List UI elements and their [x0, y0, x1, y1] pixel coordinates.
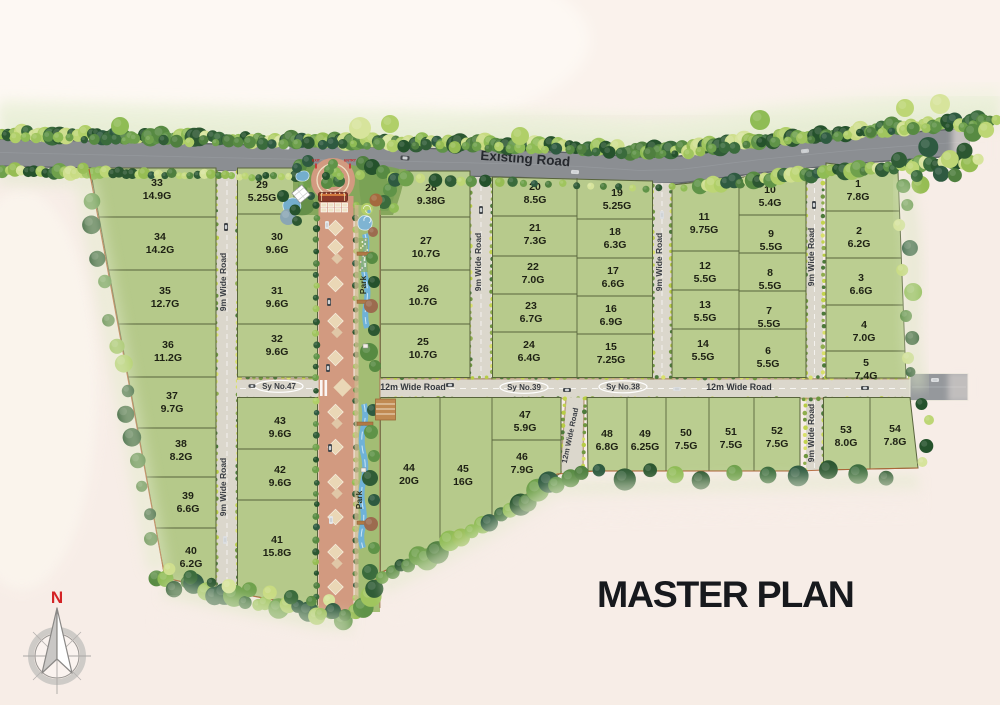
svg-text:12m Wide Road: 12m Wide Road [706, 382, 771, 392]
svg-text:9m Wide Road: 9m Wide Road [654, 233, 664, 292]
svg-text:9m Wide Road: 9m Wide Road [806, 228, 816, 287]
svg-text:MASTER PLAN: MASTER PLAN [597, 573, 854, 615]
svg-text:Park: Park [354, 491, 364, 510]
svg-text:9m Wide Road: 9m Wide Road [218, 458, 228, 517]
svg-text:Sy No.47: Sy No.47 [262, 382, 296, 391]
svg-text:ENTRY: ENTRY [344, 159, 357, 163]
svg-text:Park: Park [358, 276, 368, 295]
svg-text:12m Wide Road: 12m Wide Road [380, 382, 445, 392]
svg-text:9m Wide Road: 9m Wide Road [218, 253, 228, 312]
svg-text:9m Wide Road: 9m Wide Road [806, 404, 816, 463]
svg-text:9m Wide Road: 9m Wide Road [473, 233, 483, 292]
svg-text:Sy No.39: Sy No.39 [507, 383, 541, 392]
svg-text:N: N [51, 588, 63, 607]
svg-text:EXIT: EXIT [312, 159, 321, 163]
svg-text:Sy No.38: Sy No.38 [606, 383, 640, 392]
